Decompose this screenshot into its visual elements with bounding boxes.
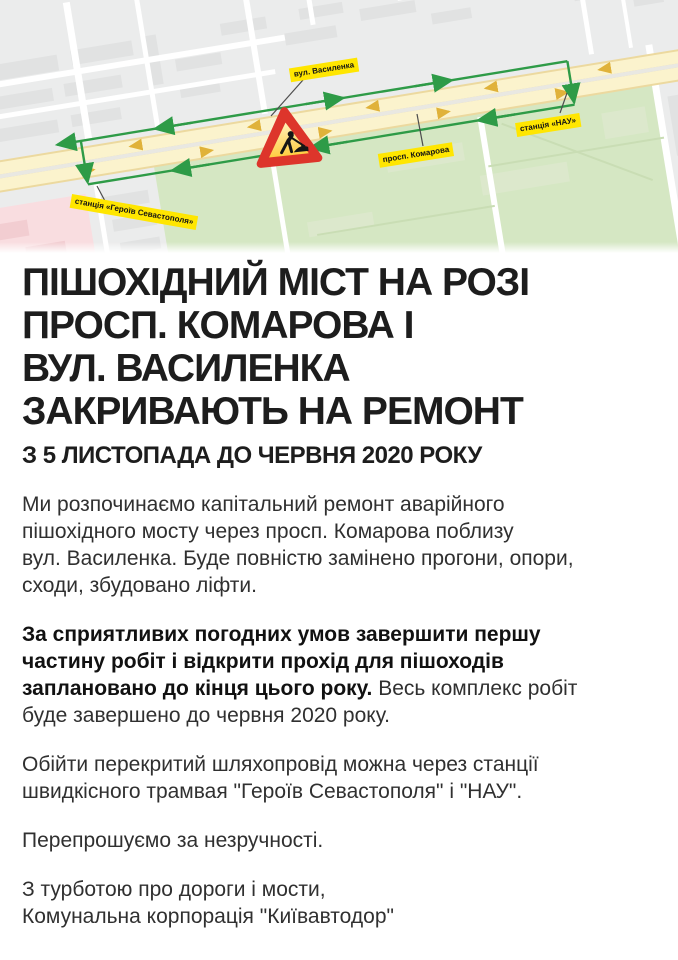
- paragraph-schedule: За сприятливих погодних умов завершити п…: [22, 621, 656, 729]
- map: вул. Василенка просп. Комарова станція «…: [0, 0, 678, 253]
- subheadline: З 5 ЛИСТОПАДА ДО ЧЕРВНЯ 2020 РОКУ: [22, 443, 656, 469]
- announcement: ПІШОХІДНИЙ МІСТ НА РОЗІ ПРОСП. КОМАРОВА …: [0, 261, 678, 930]
- paragraph-detour: Обійти перекритий шляхопровід можна чере…: [22, 751, 656, 805]
- signature: З турботою про дороги і мости, Комунальн…: [22, 876, 656, 930]
- paragraph-intro: Ми розпочинаємо капітальний ремонт аварі…: [22, 491, 656, 599]
- map-fade: [0, 242, 678, 253]
- poster: вул. Василенка просп. Комарова станція «…: [0, 0, 678, 960]
- paragraph-apology: Перепрошуємо за незручності.: [22, 827, 656, 854]
- headline: ПІШОХІДНИЙ МІСТ НА РОЗІ ПРОСП. КОМАРОВА …: [22, 261, 656, 433]
